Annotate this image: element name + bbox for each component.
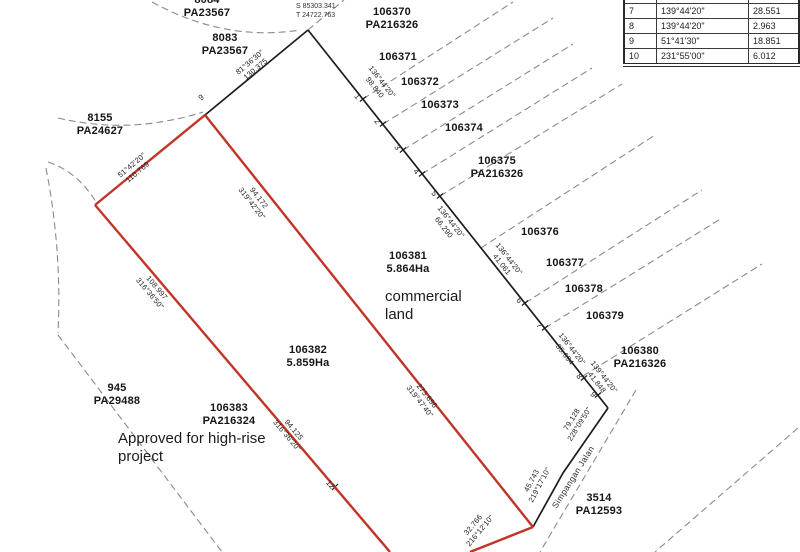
parcel-label-106381: 1063815.864Ha (387, 250, 430, 276)
lot-number: 106381 (387, 250, 430, 263)
bearing-cell: 51°41'30" (657, 34, 749, 49)
plan-number: PA24627 (77, 125, 123, 138)
note-line: Approved for high-rise (118, 430, 266, 448)
distance-cell: 18.851 (749, 34, 799, 49)
plan-number: PA23567 (202, 45, 248, 58)
parcel-label-106372: 106372 (401, 76, 439, 89)
dashed-line (403, 44, 573, 150)
lot-number: 8084 (184, 0, 230, 7)
lot-number: 3514 (576, 492, 622, 505)
bearing-distance-table: 7 139°44'20" 28.551 8 139°44'20" 2.963 9… (623, 0, 800, 67)
point-cell: 10 (624, 49, 657, 66)
plan-number: PA29488 (94, 395, 140, 408)
commercial-land-note: commercial land (385, 288, 462, 325)
note-line: project (118, 448, 266, 466)
approved-highrise-note: Approved for high-rise project (118, 430, 266, 467)
parcel-label-945: 945PA29488 (94, 382, 140, 408)
bearing-cell: 139°44'20" (657, 4, 749, 19)
distance-cell: 28.551 (749, 4, 799, 19)
station-coordinates: S 85303.341 T 24722.763 (296, 2, 336, 21)
table-row: 10 231°55'00" 6.012 (624, 49, 799, 66)
parcel-label-106375: 106375PA216326 (471, 155, 524, 181)
parcel-label-3514: 3514PA12593 (576, 492, 622, 518)
dashed-curve (48, 162, 96, 202)
table-row: 8 139°44'20" 2.963 (624, 19, 799, 34)
table-row: 9 51°41'30" 18.851 (624, 34, 799, 49)
parcel-label-106379: 106379 (586, 310, 624, 323)
point-cell: 8 (624, 19, 657, 34)
note-line: land (385, 306, 462, 324)
lot-number: 106379 (586, 310, 624, 323)
dashed-line (440, 84, 622, 196)
lot-number: 106374 (445, 122, 483, 135)
plan-number: PA216326 (366, 19, 419, 32)
bearing-cell: 231°55'00" (657, 49, 749, 66)
survey-plan-canvas: 7 139°44'20" 28.551 8 139°44'20" 2.963 9… (0, 0, 800, 552)
parcel-area: 5.864Ha (387, 263, 430, 276)
lot-number: 945 (94, 382, 140, 395)
lot-number: 106372 (401, 76, 439, 89)
parcel-label-106380: 106380PA216326 (614, 345, 667, 371)
coordinate-line: T 24722.763 (296, 11, 336, 20)
point-cell: 7 (624, 4, 657, 19)
parcel-label-8155: 8155PA24627 (77, 112, 123, 138)
bearing-cell: 139°44'20" (657, 19, 749, 34)
lot-number: 106380 (614, 345, 667, 358)
table-row: 7 139°44'20" 28.551 (624, 4, 799, 19)
parcel-label-106382: 1063825.859Ha (287, 344, 330, 370)
parcel-label-8083: 8083PA23567 (202, 32, 248, 58)
parcel-label-106374: 106374 (445, 122, 483, 135)
lot-number: 106371 (379, 51, 417, 64)
parcel-label-8084: 8084PA23567 (184, 0, 230, 20)
lot-number: 106375 (471, 155, 524, 168)
plan-number: PA216326 (614, 358, 667, 371)
note-line: commercial (385, 288, 462, 306)
lot-number: 106377 (546, 257, 584, 270)
parcel-label-106373: 106373 (421, 99, 459, 112)
survey-lines-svg (0, 0, 800, 552)
lot-number: 106382 (287, 344, 330, 357)
distance-cell: 2.963 (749, 19, 799, 34)
parcel-label-106376: 106376 (521, 226, 559, 239)
dashed-road-edge (655, 428, 798, 552)
lot-number: 106373 (421, 99, 459, 112)
parcel-label-106377: 106377 (546, 257, 584, 270)
dashed-curve (46, 168, 59, 333)
plan-number: PA216326 (471, 168, 524, 181)
parcel-label-106378: 106378 (565, 283, 603, 296)
lot-number: 106378 (565, 283, 603, 296)
parcel-label-106371: 106371 (379, 51, 417, 64)
point-cell: 9 (624, 34, 657, 49)
plan-number: PA216324 (203, 415, 256, 428)
distance-cell: 6.012 (749, 49, 799, 66)
lot-number: 106376 (521, 226, 559, 239)
coordinate-line: S 85303.341 (296, 2, 336, 11)
plan-number: PA23567 (184, 7, 230, 20)
plan-number: PA12593 (576, 505, 622, 518)
lot-number: 106383 (203, 402, 256, 415)
lot-number: 8083 (202, 32, 248, 45)
dashed-line (481, 135, 655, 248)
lot-number: 8155 (77, 112, 123, 125)
parcel-area: 5.859Ha (287, 357, 330, 370)
parcel-label-106383: 106383PA216324 (203, 402, 256, 428)
lot-number: 106370 (366, 6, 419, 19)
red-boundary-lines (95, 115, 533, 552)
red-segment (95, 205, 390, 552)
parcel-label-106370: 106370PA216326 (366, 6, 419, 32)
